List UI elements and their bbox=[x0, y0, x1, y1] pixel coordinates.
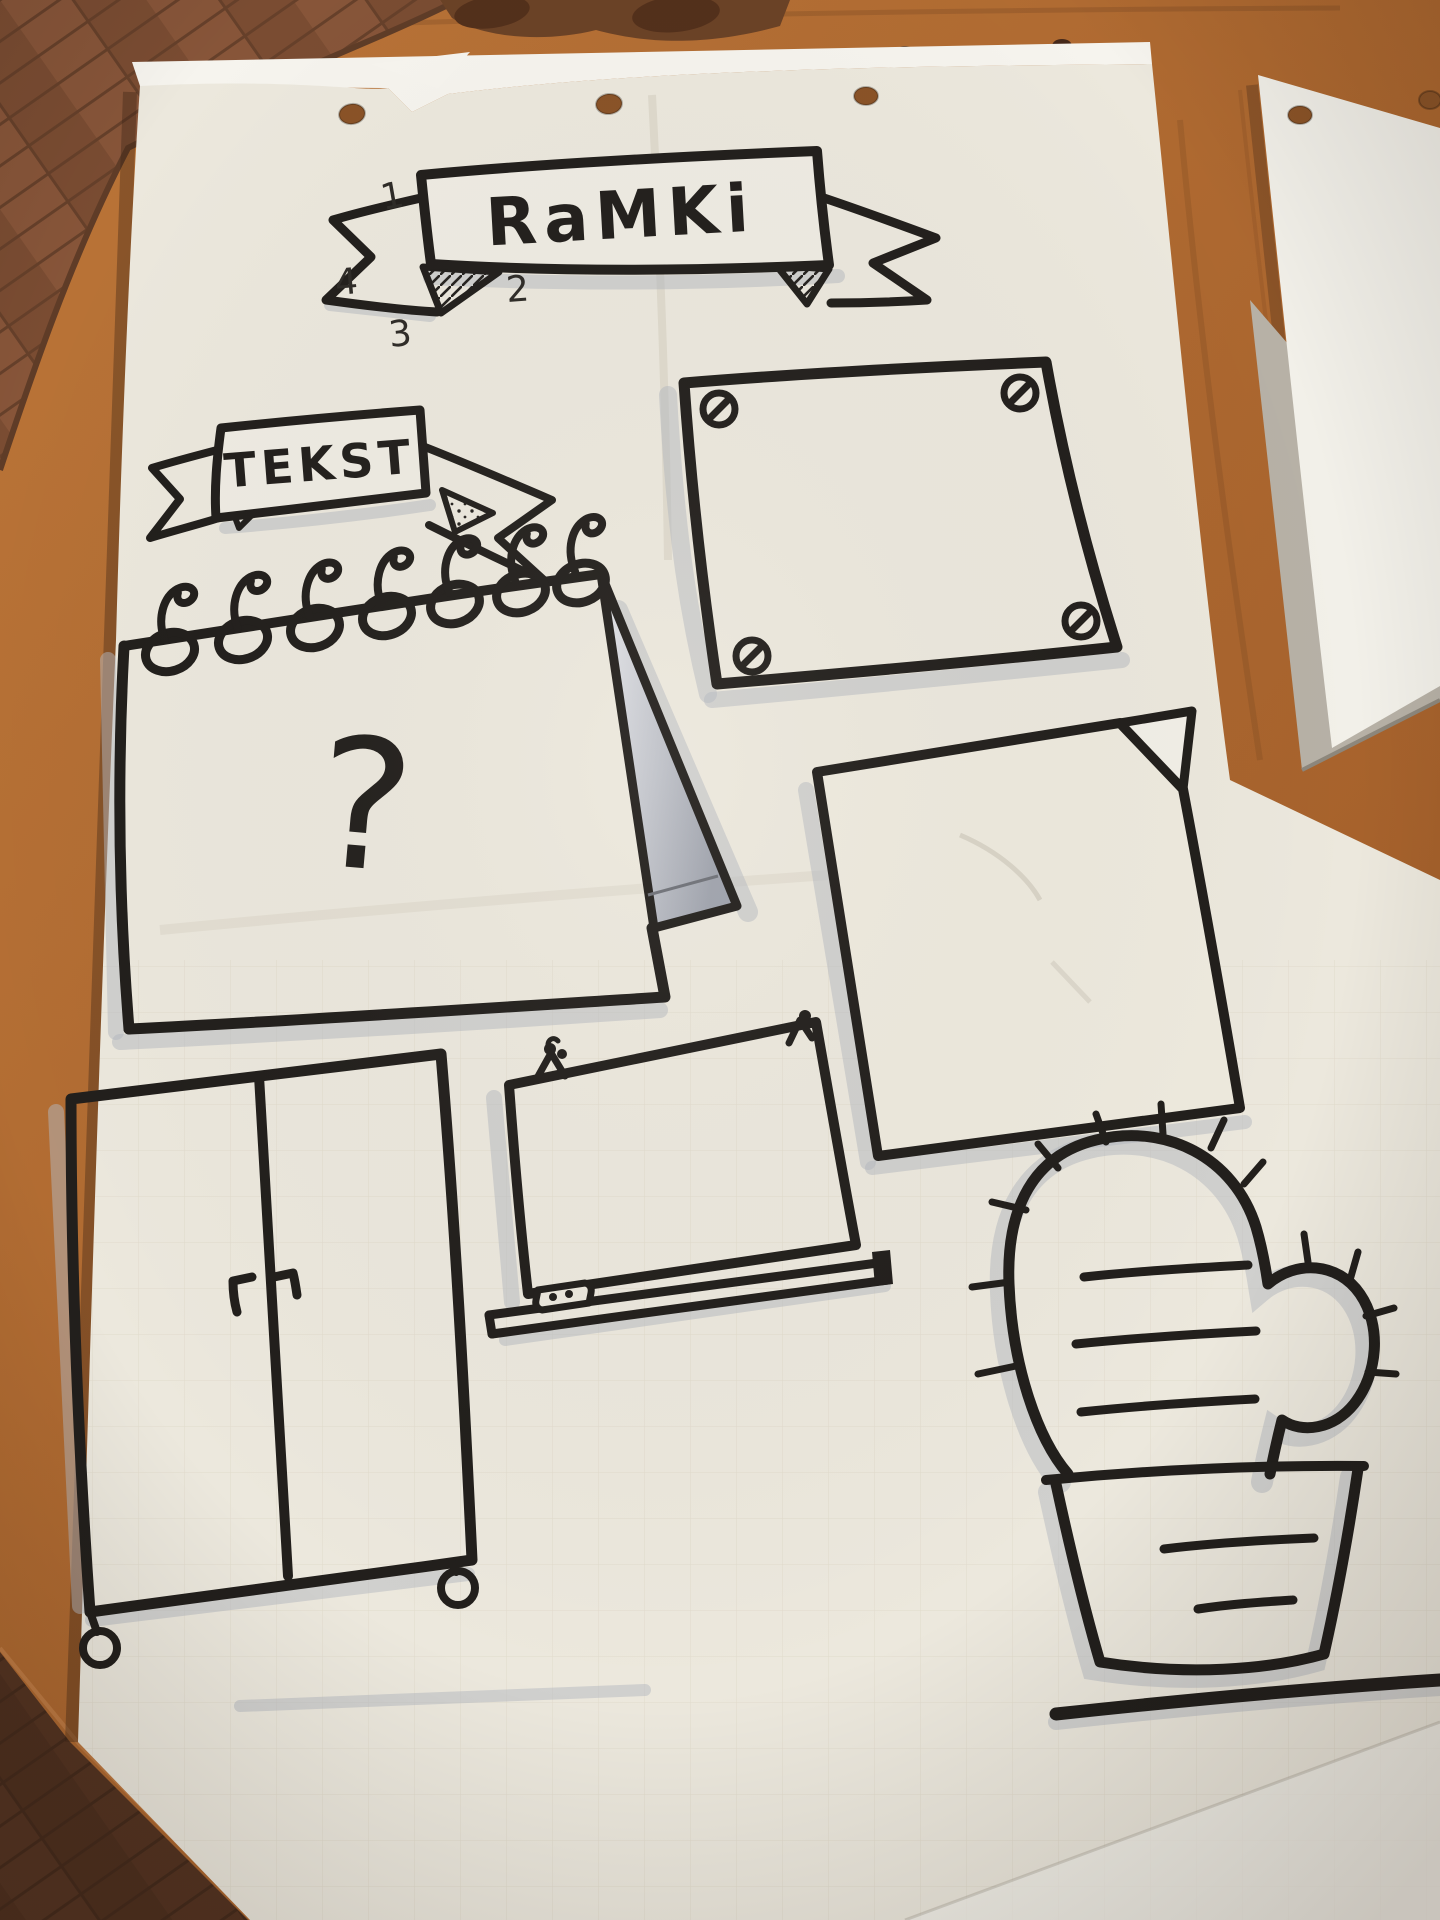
scene-canvas: RaMKi 1 2 3 4 TEKST bbox=[0, 0, 1440, 1920]
photo-vignette bbox=[0, 0, 1440, 1920]
photo-of-flipchart-sketch: RaMKi 1 2 3 4 TEKST bbox=[0, 0, 1440, 1920]
